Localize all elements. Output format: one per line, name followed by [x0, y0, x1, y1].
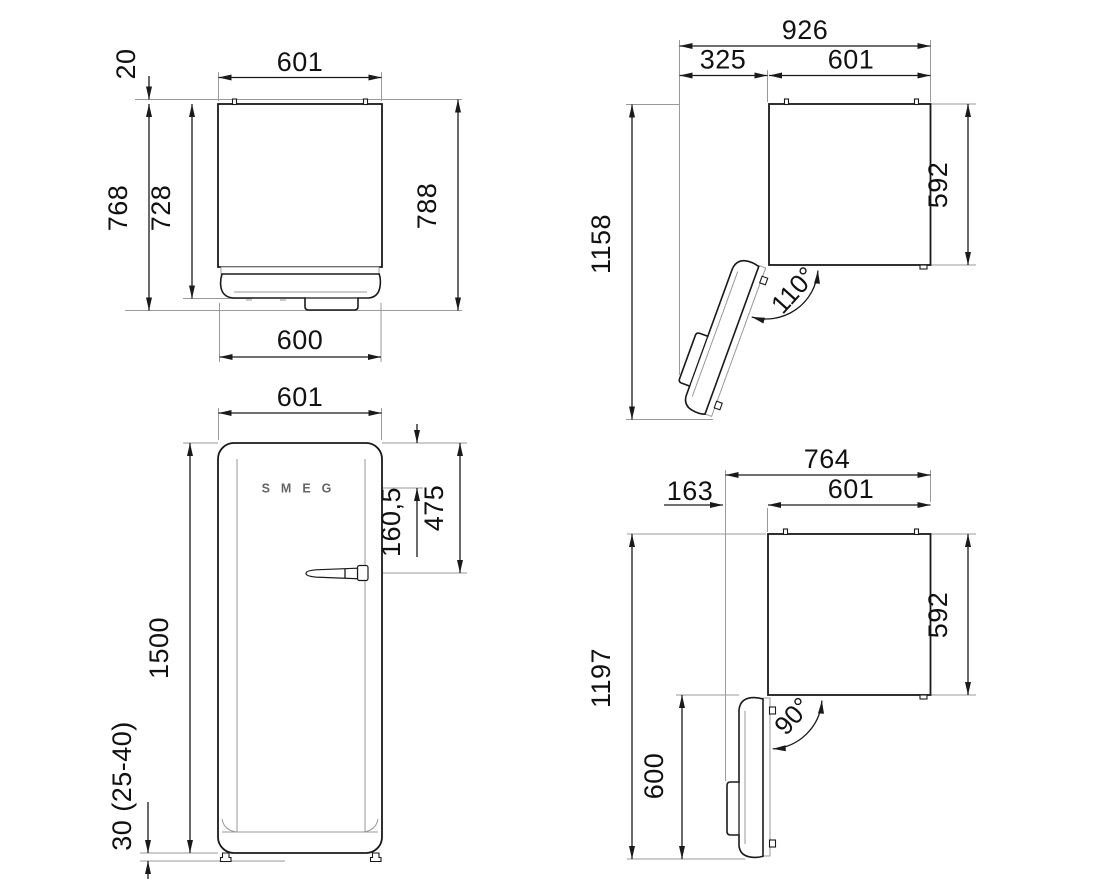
- dim-label: 20: [111, 48, 141, 79]
- dim-label: 601: [828, 474, 875, 504]
- dimension-width-601: 601: [219, 47, 382, 78]
- hinge-pin: [233, 99, 237, 105]
- dim-label: 926: [782, 15, 829, 45]
- dimension-height-1500: 1500: [144, 443, 190, 853]
- dimension-door-swing-163: 163: [664, 476, 723, 506]
- dimension-overall-depth-1197: 1197: [586, 534, 632, 859]
- brand-logo: SMEG: [262, 482, 343, 496]
- dimension-depth-768: 768: [103, 104, 149, 311]
- dimension-door-depth-600: 600: [639, 695, 682, 859]
- dim-label: 600: [277, 325, 324, 355]
- dimension-overall-width-764: 764: [726, 444, 931, 475]
- dimension-total-depth-788: 788: [412, 100, 458, 311]
- view-top-door-closed: 601 20 768 728 788 600: [103, 47, 462, 362]
- dim-label: 163: [667, 476, 714, 506]
- door-closed: [221, 267, 381, 310]
- dim-label: 601: [277, 382, 324, 412]
- hinge-pin: [784, 529, 788, 535]
- dim-label: 475: [419, 485, 449, 532]
- dim-label: 1500: [144, 617, 174, 679]
- fridge-front-outline: [218, 443, 382, 853]
- foot-tab: [920, 265, 927, 269]
- dim-label: 1158: [586, 214, 616, 274]
- door-open-110: [671, 253, 771, 420]
- dim-label: 601: [277, 47, 324, 77]
- technical-drawing: 601 20 768 728 788 600: [0, 0, 1111, 893]
- cabinet-outline: [769, 104, 931, 265]
- dim-label: 788: [412, 183, 442, 230]
- cabinet-outline: [218, 104, 382, 267]
- dim-label: 768: [103, 185, 133, 232]
- hinge-pin: [915, 529, 919, 535]
- dimension-cabinet-depth-728: 728: [146, 104, 192, 299]
- dimension-width-601: 601: [768, 474, 931, 505]
- dim-label: 764: [804, 444, 851, 474]
- dimension-door-width-600: 600: [220, 325, 382, 357]
- dim-label: 728: [146, 185, 176, 232]
- dimension-width-601: 601: [769, 45, 931, 76]
- dim-label: 592: [923, 592, 953, 639]
- dimension-feet-30: 30 (25-40): [107, 721, 148, 879]
- refrigerator-dimension-diagram: 601 20 768 728 788 600: [0, 0, 1111, 893]
- dim-label: 592: [923, 162, 953, 209]
- foot: [371, 853, 382, 862]
- dim-label: 325: [700, 45, 747, 75]
- dimension-door-swing-325: 325: [680, 45, 768, 76]
- view-front: SMEG 601 160,5 475 1500 30 (25-40): [107, 382, 467, 879]
- dim-label: 30 (25-40): [107, 721, 137, 851]
- view-top-door-110: 926 325 601 1158 592 110°: [586, 15, 976, 420]
- dimension-handle-offset-475: 475: [419, 443, 460, 573]
- dim-label: 160,5: [376, 487, 406, 557]
- door-angle-label: 90°: [768, 691, 817, 740]
- dimension-logo-offset-160-5: 160,5: [376, 424, 417, 557]
- foot-tab: [920, 695, 927, 699]
- hinge-pin: [364, 99, 368, 105]
- foot: [221, 853, 232, 862]
- dimension-overall-width-926: 926: [680, 15, 931, 46]
- dim-label: 600: [639, 753, 669, 800]
- dim-label: 1197: [586, 648, 616, 708]
- door-angle-label: 110°: [765, 261, 822, 320]
- dimension-rear-clearance-20: 20: [111, 48, 149, 99]
- dimension-width-601: 601: [219, 382, 382, 413]
- dim-label: 601: [828, 45, 875, 75]
- view-top-door-90: 764 163 601 1197 600 592 90°: [586, 444, 976, 859]
- hinge-pin: [915, 99, 919, 105]
- dimension-overall-depth-1158: 1158: [586, 105, 632, 420]
- cabinet-outline: [768, 534, 931, 695]
- hinge-pin: [785, 99, 789, 105]
